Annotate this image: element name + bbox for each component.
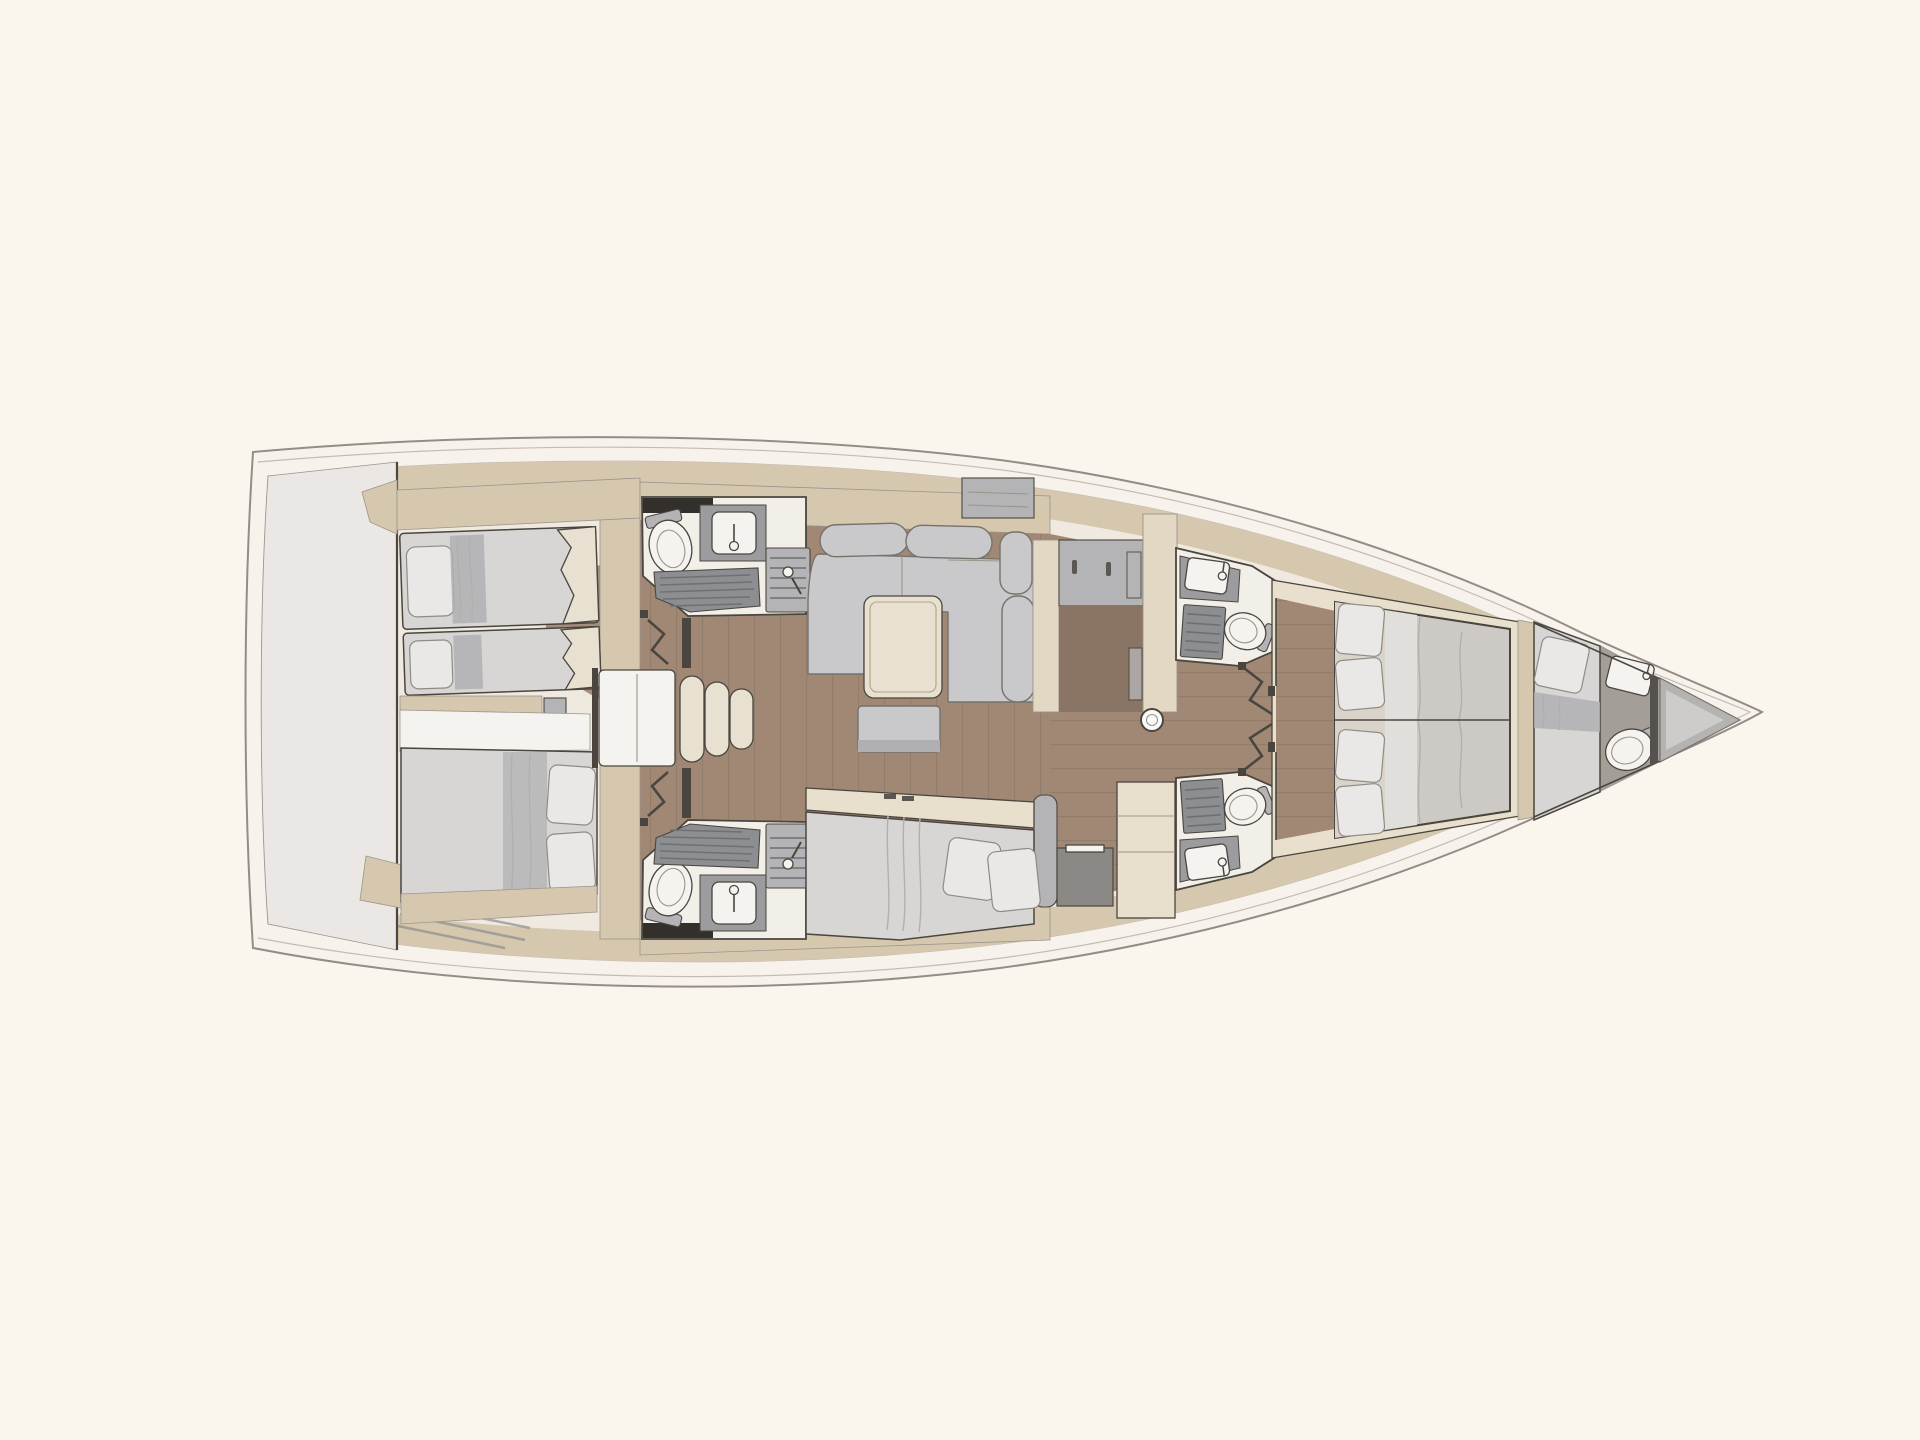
double-bed-headboard-shelf <box>400 710 590 752</box>
starboard-cabinet <box>1117 782 1175 918</box>
wardrobe-column <box>1033 540 1059 712</box>
starboard-berth <box>806 788 1041 940</box>
mast-post-outer <box>1141 709 1163 731</box>
yacht-floor-plan: Sailing yacht interior layout floor plan <box>0 0 1920 1440</box>
stair-step-1 <box>680 676 704 762</box>
counter-handle <box>902 796 914 801</box>
port-vestibule <box>1033 514 1177 712</box>
door-handle <box>1072 560 1077 574</box>
landing-threshold <box>1066 845 1104 852</box>
berth-pillow <box>987 848 1041 913</box>
shower-mixer <box>783 859 793 869</box>
faucet <box>1218 571 1227 580</box>
cockpit-locker-panel <box>962 478 1034 518</box>
double-bed-blanket <box>503 752 547 898</box>
faucet <box>730 542 739 551</box>
double-bed-pillow <box>546 831 596 892</box>
mast-post <box>1141 709 1163 731</box>
sofa-back-cushion <box>906 525 993 559</box>
sofa-back-cushion <box>820 523 909 557</box>
door-post <box>640 610 648 618</box>
shower-mixer <box>783 567 793 577</box>
saloon-bench-edge <box>858 740 940 752</box>
twin-bed-1-pillow <box>406 546 454 618</box>
bow-bulkhead <box>1650 674 1658 766</box>
sofa-chaise-cushion <box>1002 596 1034 702</box>
owner-pillow <box>1335 783 1385 837</box>
door-post <box>682 618 691 668</box>
stair-step-2 <box>705 682 729 756</box>
owner-pillow <box>1335 729 1385 783</box>
double-bed-pillow <box>546 764 596 825</box>
door-post <box>1268 686 1275 696</box>
stair-step-3 <box>730 689 753 749</box>
locker-strip <box>1129 648 1142 700</box>
owner-pillow <box>1335 657 1385 711</box>
faucet <box>730 886 739 895</box>
locker-strip <box>1127 552 1141 598</box>
forward-bulkhead <box>1518 620 1534 820</box>
counter-handle <box>884 794 896 799</box>
sofa-corner-cushion <box>1000 532 1032 594</box>
aft-cabin-shelf-locker <box>544 698 566 714</box>
door-post <box>1268 742 1275 752</box>
owner-cabin <box>1268 580 1520 858</box>
door-post <box>640 818 648 826</box>
yacht-floor-plan-canvas: Sailing yacht interior layout floor plan <box>0 0 1920 1440</box>
vestibule-column <box>1143 514 1177 712</box>
owner-pillow <box>1335 603 1385 657</box>
saloon-table <box>864 596 942 698</box>
aft-cabin-starboard <box>400 710 597 924</box>
owner-aisle-planks <box>1276 598 1340 840</box>
twin-bed-2-blanket <box>453 635 483 690</box>
door-handle <box>1106 562 1111 576</box>
twin-bed-2-pillow <box>409 640 453 689</box>
twin-bed-1-blanket <box>450 535 487 624</box>
aft-cabin-port <box>400 527 602 716</box>
stair-rail <box>592 668 598 768</box>
faucet <box>1218 858 1227 867</box>
door-post <box>682 768 691 818</box>
galley-landing <box>1057 848 1113 906</box>
